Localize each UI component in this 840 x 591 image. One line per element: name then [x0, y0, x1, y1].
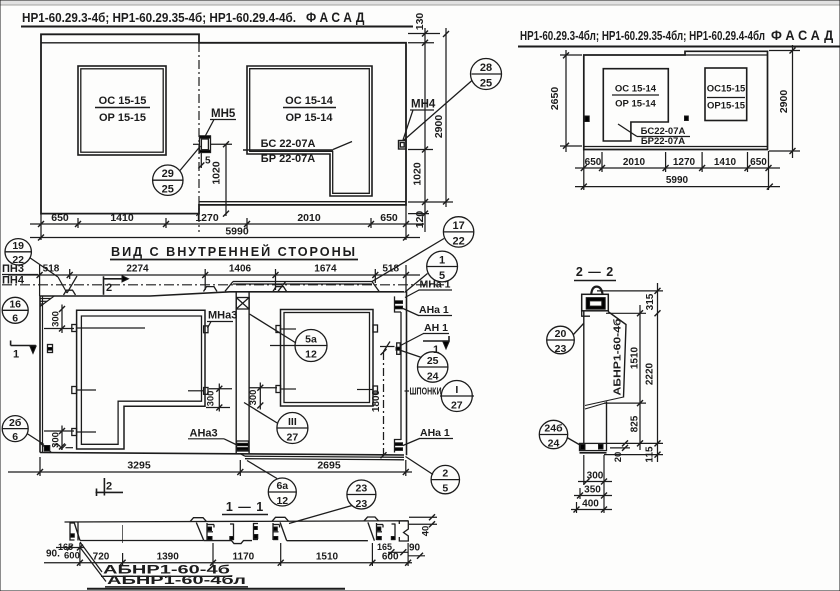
svg-text:24б: 24б — [544, 423, 563, 435]
svg-text:5990: 5990 — [225, 226, 249, 238]
svg-text:518: 518 — [382, 264, 399, 275]
svg-text:2б: 2б — [9, 417, 22, 429]
svg-text:ПН4: ПН4 — [2, 275, 25, 287]
svg-text:28: 28 — [480, 62, 492, 74]
svg-text:1020: 1020 — [412, 162, 424, 186]
svg-text:ВИД С ВНУТРЕННЕЙ СТОРОНЫ: ВИД С ВНУТРЕННЕЙ СТОРОНЫ — [111, 244, 357, 259]
svg-text:165: 165 — [377, 542, 392, 552]
svg-text:2274: 2274 — [126, 264, 149, 275]
svg-text:ОР15-15: ОР15-15 — [707, 101, 746, 112]
svg-text:6а: 6а — [276, 480, 288, 492]
svg-text:1170: 1170 — [233, 552, 255, 563]
svg-text:I: I — [455, 384, 458, 396]
svg-text:17: 17 — [452, 220, 464, 232]
svg-text:1510: 1510 — [630, 346, 641, 369]
svg-text:ОС 15-15: ОС 15-15 — [99, 95, 147, 107]
svg-text:27: 27 — [287, 432, 299, 444]
svg-text:300: 300 — [248, 390, 259, 406]
svg-text:23: 23 — [555, 343, 567, 355]
svg-text:ФАСАД: ФАСАД — [306, 10, 368, 25]
svg-text:1270: 1270 — [673, 157, 696, 168]
svg-text:1406: 1406 — [229, 264, 252, 275]
svg-text:АБНР1-60-4б: АБНР1-60-4б — [612, 318, 624, 396]
svg-text:1674: 1674 — [314, 264, 337, 275]
svg-text:АН 1: АН 1 — [424, 322, 448, 334]
svg-text:2: 2 — [106, 282, 112, 294]
svg-text:5990: 5990 — [666, 175, 689, 186]
svg-text:400: 400 — [582, 499, 599, 510]
svg-text:АНа3: АНа3 — [190, 428, 218, 440]
svg-text:МН5: МН5 — [211, 108, 236, 120]
svg-text:650: 650 — [585, 157, 602, 168]
svg-text:650: 650 — [51, 212, 69, 224]
svg-text:22: 22 — [12, 254, 24, 266]
svg-text:1390: 1390 — [157, 552, 180, 563]
svg-text:1410: 1410 — [714, 157, 737, 168]
svg-text:22: 22 — [452, 236, 464, 248]
svg-text:19: 19 — [12, 240, 24, 252]
svg-text:25: 25 — [427, 355, 439, 367]
svg-text:5: 5 — [442, 483, 448, 495]
svg-text:6: 6 — [12, 431, 18, 443]
svg-text:1: 1 — [13, 349, 19, 361]
svg-text:2010: 2010 — [297, 212, 321, 224]
svg-text:25: 25 — [162, 184, 174, 196]
svg-text:20: 20 — [613, 452, 624, 463]
svg-text:1410: 1410 — [110, 212, 134, 224]
svg-text:2695: 2695 — [317, 460, 341, 472]
svg-text:16: 16 — [9, 299, 21, 311]
svg-text:2900: 2900 — [778, 90, 790, 114]
svg-text:2: 2 — [106, 481, 112, 493]
svg-text:ШПОНКИ: ШПОНКИ — [410, 387, 442, 398]
svg-text:2900: 2900 — [433, 115, 445, 139]
svg-text:90: 90 — [409, 543, 421, 554]
svg-text:МНа3: МНа3 — [208, 310, 237, 322]
svg-text:350: 350 — [584, 485, 601, 496]
svg-text:ОР 15-14: ОР 15-14 — [285, 112, 333, 124]
svg-text:40: 40 — [421, 526, 432, 537]
svg-text:ОС 15-14: ОС 15-14 — [285, 95, 334, 107]
svg-text:ОР 15-14: ОР 15-14 — [615, 99, 656, 110]
svg-text:МН4: МН4 — [411, 99, 436, 111]
svg-text:720: 720 — [93, 552, 110, 563]
svg-text:27: 27 — [451, 400, 463, 412]
svg-text:650: 650 — [380, 212, 398, 224]
svg-text:29: 29 — [162, 168, 174, 180]
svg-text:2220: 2220 — [645, 362, 656, 385]
svg-text:2010: 2010 — [623, 157, 646, 168]
svg-text:300: 300 — [206, 391, 217, 407]
svg-text:ОР 15-15: ОР 15-15 — [99, 112, 146, 124]
svg-text:20: 20 — [555, 328, 567, 340]
svg-text:МНа 1: МНа 1 — [420, 279, 451, 291]
svg-text:III: III — [288, 416, 297, 428]
svg-text:АБНР1-60-4бл: АБНР1-60-4бл — [107, 575, 246, 587]
svg-text:1270: 1270 — [195, 212, 219, 224]
svg-text:300: 300 — [51, 311, 62, 327]
svg-text:ФАСАД: ФАСАД — [771, 28, 837, 43]
svg-text:1510: 1510 — [316, 552, 339, 563]
svg-text:1020: 1020 — [211, 161, 223, 185]
svg-text:БС 22-07А: БС 22-07А — [261, 138, 316, 150]
svg-text:315: 315 — [645, 293, 656, 310]
svg-text:25: 25 — [480, 78, 492, 90]
svg-text:130: 130 — [414, 13, 426, 31]
svg-text:300: 300 — [587, 471, 604, 482]
svg-text:НР1-60.29.3-4б; НР1-60.29.35-4: НР1-60.29.3-4б; НР1-60.29.35-4б; НР1-60.… — [22, 10, 296, 25]
svg-text:600: 600 — [64, 551, 80, 562]
svg-text:23: 23 — [356, 483, 368, 495]
svg-text:825: 825 — [630, 415, 641, 432]
svg-text:12: 12 — [305, 349, 317, 361]
svg-text:24: 24 — [548, 438, 560, 450]
svg-text:5а: 5а — [305, 334, 317, 346]
svg-text:1800: 1800 — [371, 389, 382, 412]
svg-text:300: 300 — [51, 432, 62, 448]
svg-text:2 — 2: 2 — 2 — [576, 265, 614, 279]
svg-text:АНа 1: АНа 1 — [419, 304, 449, 316]
svg-text:24: 24 — [427, 371, 439, 383]
svg-text:2: 2 — [442, 468, 448, 480]
svg-text:БР22-07А: БР22-07А — [641, 136, 685, 147]
svg-text:АНа 1: АНа 1 — [420, 427, 450, 439]
svg-text:650: 650 — [750, 157, 767, 168]
svg-text:1: 1 — [439, 255, 445, 267]
svg-text:НР1-60.29.3-4бл; НР1-60.29.35-: НР1-60.29.3-4бл; НР1-60.29.35-4бл; НР1-6… — [520, 28, 765, 43]
svg-text:12: 12 — [276, 495, 288, 507]
svg-text:120: 120 — [414, 211, 426, 229]
svg-text:115: 115 — [645, 446, 656, 463]
svg-text:23: 23 — [356, 498, 368, 510]
svg-text:1 — 1: 1 — 1 — [226, 500, 264, 514]
svg-text:ОС15-15: ОС15-15 — [707, 84, 746, 95]
svg-text:3295: 3295 — [127, 460, 151, 472]
svg-text:ОС 15-14: ОС 15-14 — [615, 84, 657, 95]
svg-text:БР 22-07А: БР 22-07А — [261, 153, 315, 165]
svg-text:2650: 2650 — [549, 87, 561, 111]
svg-text:6: 6 — [12, 313, 18, 325]
